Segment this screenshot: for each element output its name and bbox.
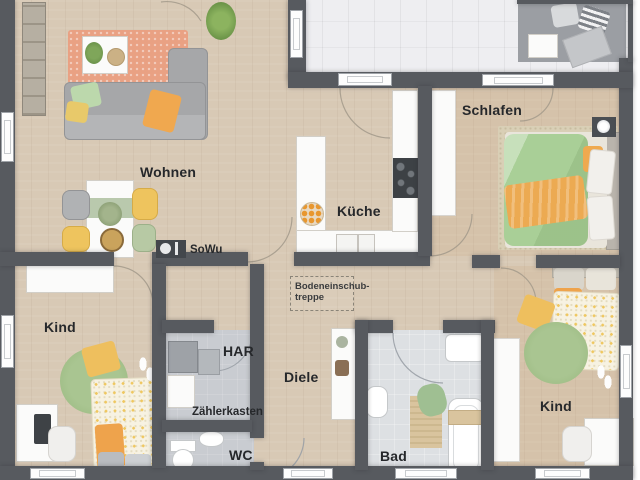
wall-left	[0, 0, 15, 480]
window-bottom-kind-right	[535, 468, 590, 479]
table-tray	[107, 48, 125, 66]
wall-har-diele-stub	[250, 462, 264, 470]
window-bottom-bad	[395, 468, 457, 479]
dining-chair-yellow-2	[62, 226, 90, 252]
dining-chair-gray	[62, 190, 90, 220]
fruit-bowl	[300, 202, 324, 226]
bath-sink-left	[366, 386, 388, 418]
window-terrace-side	[290, 10, 303, 58]
window-bottom-kind-left	[30, 468, 85, 479]
living-shelf	[22, 2, 46, 116]
wall-mid-d	[472, 255, 500, 268]
kitchen-sink-2	[358, 234, 375, 254]
hall-console-bag	[335, 360, 349, 376]
bath-vanity	[445, 334, 485, 362]
kind-right-wardrobe	[493, 338, 520, 462]
wall-har-top	[162, 320, 214, 333]
wall-bad-left	[355, 320, 368, 470]
terrace-door-schlafen	[482, 74, 554, 86]
kind-right-rug	[524, 322, 588, 384]
dinner-plate	[100, 228, 124, 252]
terrace-door-kitchen	[338, 73, 392, 86]
terrace-pillow-gray	[550, 2, 579, 28]
wall-mid-c	[294, 252, 430, 266]
wall-top-thin	[517, 0, 633, 4]
annotation-sowu: SoWu	[190, 244, 222, 256]
wall-kitchen-schlafen	[418, 86, 432, 256]
window-living-left	[1, 112, 14, 162]
bed-pillow-white-1	[586, 149, 616, 195]
kind-left-dresser	[26, 265, 114, 293]
kind-right-pillow-2	[586, 268, 616, 290]
wall-mid-e	[536, 255, 620, 268]
plant-icon	[206, 2, 236, 40]
har-box-2	[198, 349, 220, 375]
table-plant-icon	[85, 42, 103, 64]
chimney-flue-icon	[160, 243, 171, 254]
room-label-kind-right: Kind	[540, 398, 572, 414]
room-label-kind-left: Kind	[44, 319, 76, 335]
attic-stairs-outline: Bodeneinschub- treppe	[290, 276, 354, 311]
bedroom-wardrobe	[430, 90, 456, 216]
annotation-zaehlerkasten: Zählerkasten	[192, 406, 263, 418]
kind-right-slippers	[597, 364, 612, 390]
wall-right	[619, 58, 633, 480]
floor-plan: Wohnen Küche Schlafen Kind Kind Diele HA…	[0, 0, 640, 480]
room-label-har: HAR	[223, 343, 254, 359]
attic-stairs-label-line2: treppe	[295, 292, 350, 303]
wall-har-wc-divider	[162, 420, 252, 432]
har-box-1	[168, 341, 198, 373]
attic-stairs-label-line1: Bodeneinschub-	[295, 281, 350, 292]
dining-chair-yellow-1	[132, 188, 158, 220]
bed-pillow-white-2	[586, 195, 615, 241]
terrace-tray	[528, 34, 558, 58]
room-label-schlafen: Schlafen	[462, 102, 522, 118]
kind-right-chair	[562, 426, 592, 462]
cooktop	[393, 158, 418, 198]
wc-sink	[199, 431, 224, 447]
chimney-sowu	[156, 240, 186, 258]
nightstand-lamp	[597, 120, 610, 133]
kind-right-pillow-1	[554, 268, 584, 290]
window-kind-right	[620, 345, 632, 398]
room-label-bad: Bad	[380, 448, 407, 464]
centerpiece-plant-icon	[98, 202, 122, 226]
sofa-pillow-yellow	[65, 101, 90, 124]
window-bottom-diele	[283, 468, 333, 479]
dining-chair-green	[132, 224, 156, 252]
wall-kindleft-har	[152, 264, 166, 468]
wall-right-top-thin	[628, 0, 633, 62]
room-label-diele: Diele	[284, 369, 318, 385]
chimney-vent-icon	[175, 242, 178, 255]
kitchen-sink	[336, 234, 358, 254]
wall-bad-right	[481, 320, 494, 470]
kind-left-chair	[48, 426, 76, 462]
bathtub-caddy	[448, 410, 484, 425]
wall-mid-a	[0, 252, 114, 266]
hall-console-deco	[336, 336, 348, 348]
room-label-wc: WC	[229, 447, 253, 463]
room-label-kueche: Küche	[337, 203, 381, 219]
har-washer	[167, 375, 195, 408]
room-label-wohnen: Wohnen	[140, 164, 196, 180]
window-kind-left	[1, 315, 14, 368]
